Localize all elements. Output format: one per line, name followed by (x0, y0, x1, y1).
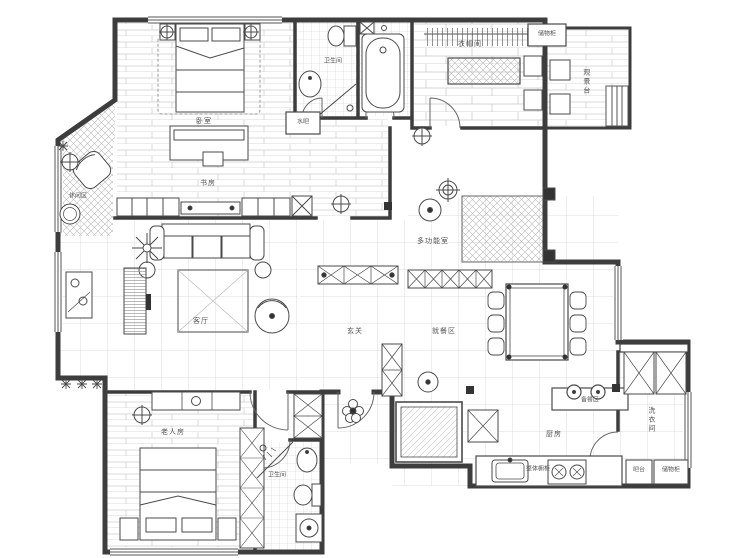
room-label-living-room: 客厅 (193, 318, 209, 326)
dining-table-icon (488, 284, 586, 360)
room-label-elder-room: 老人房 (161, 429, 185, 437)
room-label-dining-area: 就餐区 (432, 328, 456, 336)
toilet-icon-top (328, 26, 356, 46)
room-label-multi-function-room: 多功能室 (417, 238, 449, 246)
room-label-prep-area: 备餐区 (581, 398, 599, 405)
kitchen-sink-icon (492, 458, 528, 482)
room-label-bar-counter: 吧台 (633, 468, 645, 475)
bath-cabinet-icon (294, 394, 322, 438)
kitchen-chair-icon (418, 372, 438, 392)
shaft-icon (396, 402, 462, 462)
side-cabinet-icon (66, 272, 92, 318)
sideboard-icon (408, 270, 492, 288)
fridge-icon (468, 410, 498, 442)
room-label-foyer: 玄关 (347, 328, 363, 336)
room-label-kitchen: 厨房 (546, 431, 562, 439)
washing-machine-icon (296, 514, 322, 542)
foyer-console-icon (318, 266, 398, 284)
stove-icon (548, 460, 586, 484)
window-seat-icon (606, 86, 628, 126)
room-label-laundry-room: 洗衣间 (647, 407, 655, 434)
dresser-icon (152, 392, 240, 410)
toilet-icon-bottom (294, 484, 321, 506)
tv-cabinet-icon (170, 126, 248, 166)
room-label-master-bedroom: 卧室 (196, 118, 212, 126)
room-label-cloakroom: 衣帽间 (458, 41, 482, 49)
room-label-view-deck: 观景台 (582, 69, 590, 96)
armchair-icon (255, 299, 289, 333)
room-label-bathroom-bottom: 卫生间 (268, 473, 286, 480)
tall-cabinet-icon (382, 344, 402, 396)
sink-icon-top (299, 71, 321, 97)
room-label-study: 书房 (200, 180, 216, 188)
room-label-leisure-area: 休闲区 (69, 194, 87, 201)
room-label-cabinet-unit: 整体橱柜 (526, 467, 550, 474)
plant-snowflake-icon (132, 233, 162, 263)
room-label-bathroom-top: 卫生间 (324, 59, 342, 66)
floor-plan-drawing (0, 0, 740, 558)
sink-icon-bottom (297, 448, 317, 472)
room-label-storage-cabinet-top: 储物柜 (538, 32, 556, 39)
room-label-water-bar: 水吧 (297, 120, 309, 127)
floor-plan: 卧室 书房 休闲区 卫生间 水吧 衣帽间 储物柜 观景台 多功能室 客厅 玄关 … (0, 0, 740, 558)
room-label-storage-cabinet-bottom: 储物柜 (662, 468, 680, 475)
bathtub-icon (360, 22, 404, 112)
